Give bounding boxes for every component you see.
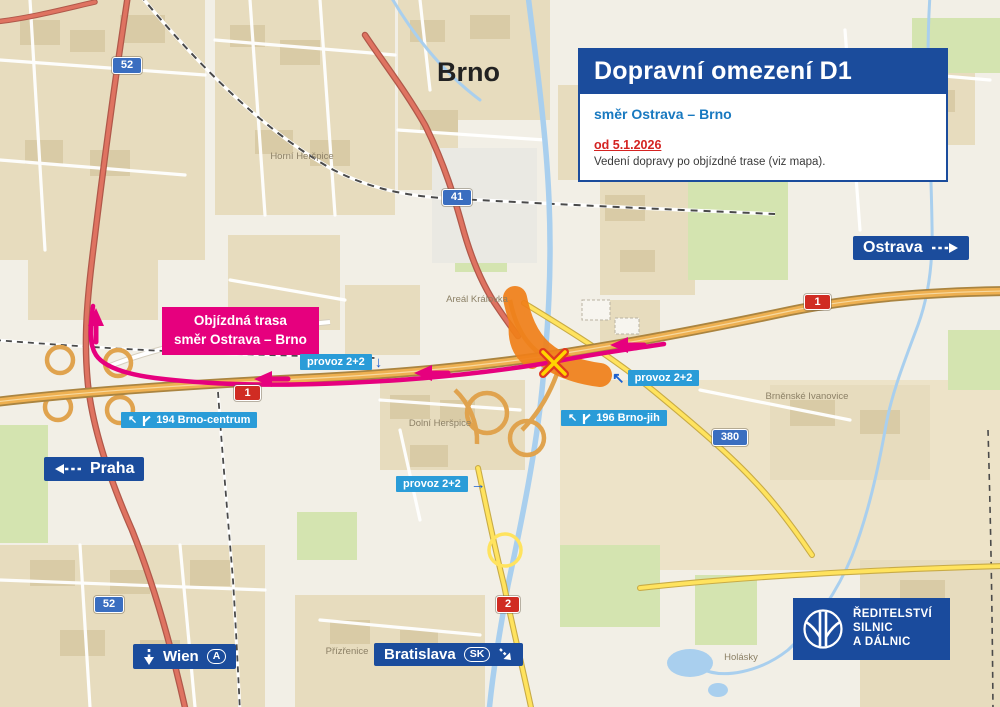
provoz-a-box: provoz 2+2	[300, 354, 372, 370]
place-areal-kralovka: Areál Královka	[446, 294, 508, 305]
detour-label-line1: Objízdná trasa	[174, 312, 307, 331]
arrow-upleft-icon: ↖	[568, 413, 577, 424]
info-box-title: Dopravní omezení D1	[580, 50, 946, 94]
exit-194-box: ↖ 194 Brno-centrum	[121, 412, 257, 428]
road-shield-d1-left: 1	[234, 385, 261, 401]
detour-label-line2: směr Ostrava – Brno	[174, 331, 307, 350]
sign-bratislava-label: Bratislava	[384, 647, 456, 662]
arrow-upleft-icon: ↖	[128, 415, 137, 426]
road-shield-2: 2	[496, 596, 520, 613]
road-shield-380: 380	[712, 429, 748, 446]
logo-line1: ŘEDITELSTVÍ	[853, 608, 932, 622]
motorway-exit-icon	[581, 413, 592, 424]
info-box-note: Vedení dopravy po objízdné trase (viz ma…	[594, 156, 932, 168]
place-brnenske-ivanovice: Brněnské Ivanovice	[766, 391, 849, 402]
exit-196-label: 196 Brno-jih	[596, 413, 660, 424]
place-prizrenice: Přízřenice	[326, 646, 369, 657]
info-box-body: směr Ostrava – Brno od 5.1.2026 Vedení d…	[580, 94, 946, 180]
info-box-subtitle: směr Ostrava – Brno	[594, 106, 932, 122]
dashed-arrow-down-icon	[143, 648, 155, 665]
sign-ostrava: Ostrava	[853, 236, 969, 260]
exit-label-194: ↖ 194 Brno-centrum	[121, 412, 257, 428]
sign-wien-label: Wien	[163, 649, 199, 664]
traffic-restriction-map-page: Brno Horní Heršpice Areál Královka Dolní…	[0, 0, 1000, 707]
exit-194-label: 194 Brno-centrum	[156, 415, 250, 426]
sign-praha-label: Praha	[90, 461, 134, 477]
detour-route-label: Objízdná trasa směr Ostrava – Brno	[162, 307, 319, 355]
road-shield-52-bottom: 52	[94, 596, 124, 613]
traffic-label-provoz-c: provoz 2+2 →	[396, 476, 486, 492]
exit-label-196: ↖ 196 Brno-jih	[561, 410, 667, 426]
road-shield-41: 41	[442, 189, 472, 206]
road-shield-52-top: 52	[112, 57, 142, 74]
motorway-exit-icon	[141, 415, 152, 426]
city-label-brno: Brno	[437, 57, 500, 88]
dashed-arrow-right-icon	[931, 242, 959, 254]
road-shield-d1-right: 1	[804, 294, 831, 310]
dashed-arrow-left-icon	[54, 463, 82, 475]
country-badge-sk: SK	[464, 647, 491, 662]
sign-bratislava: Bratislava SK	[374, 643, 523, 666]
logo-line3: A DÁLNIC	[853, 636, 932, 650]
sign-praha: Praha	[44, 457, 144, 481]
info-box-date: od 5.1.2026	[594, 138, 932, 152]
sign-ostrava-label: Ostrava	[863, 240, 923, 256]
traffic-label-provoz-a: provoz 2+2 ↓	[300, 354, 382, 370]
logo-line2: SILNIC	[853, 622, 932, 636]
place-holasky: Holásky	[724, 652, 758, 663]
highway-emblem-icon	[801, 607, 845, 651]
arrow-right-icon: →	[471, 477, 486, 492]
sign-wien: Wien A	[133, 644, 236, 669]
dashed-arrow-downright-icon	[498, 647, 513, 662]
country-badge-a: A	[207, 649, 227, 664]
provoz-c-box: provoz 2+2	[396, 476, 468, 492]
exit-196-box: ↖ 196 Brno-jih	[561, 410, 667, 426]
arrow-upleft-icon: ↖	[612, 371, 625, 386]
traffic-label-provoz-b: ↖ provoz 2+2	[612, 370, 699, 386]
rsd-logo-text: ŘEDITELSTVÍ SILNIC A DÁLNIC	[853, 608, 932, 649]
rsd-logo: ŘEDITELSTVÍ SILNIC A DÁLNIC	[793, 598, 950, 660]
place-horni-herspice: Horní Heršpice	[270, 151, 333, 162]
provoz-b-box: provoz 2+2	[628, 370, 700, 386]
arrow-down-icon: ↓	[375, 355, 383, 370]
info-box: Dopravní omezení D1 směr Ostrava – Brno …	[578, 48, 948, 182]
place-dolni-herspice: Dolní Heršpice	[409, 418, 471, 429]
